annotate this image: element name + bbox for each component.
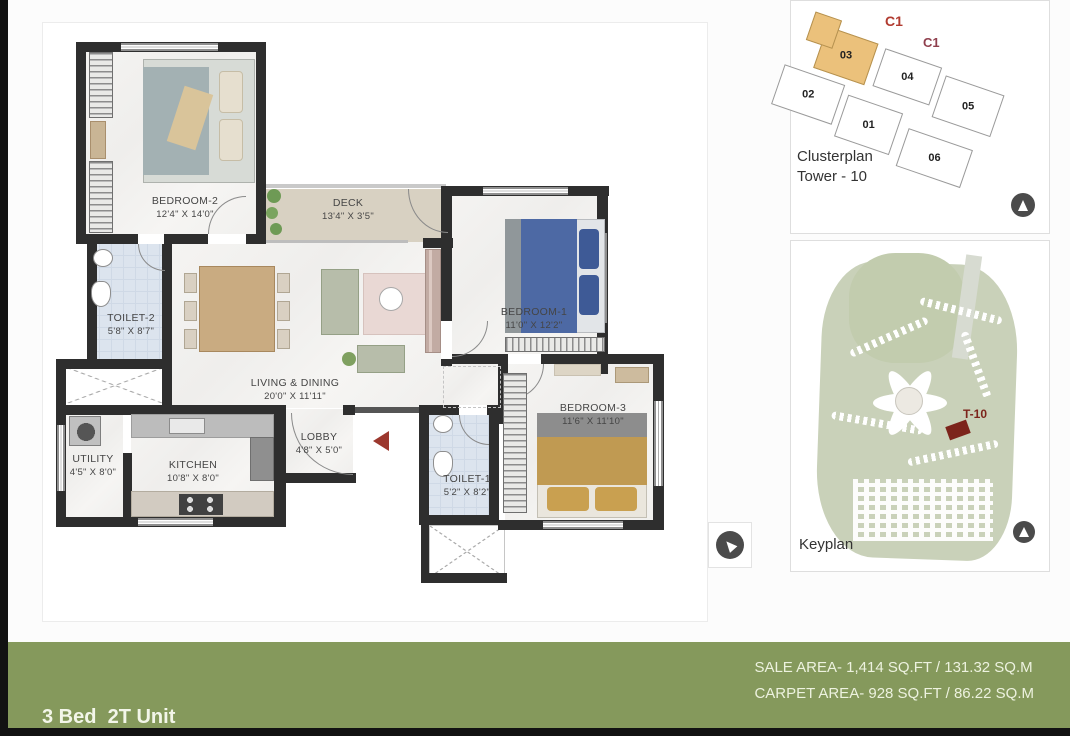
- road: [895, 387, 923, 415]
- wardrobe: [505, 337, 605, 352]
- unit-number: 02: [802, 89, 814, 101]
- unit-number: 06: [928, 152, 940, 164]
- room-name: BEDROOM-3: [518, 402, 668, 416]
- entry-arrow-icon: [373, 431, 389, 451]
- area-statistics: SALE AREA- 1,414 SQ.FT / 131.32 SQ.M CAR…: [754, 655, 1034, 708]
- chair: [184, 273, 197, 293]
- chair: [277, 273, 290, 293]
- wall: [423, 238, 453, 248]
- shaft-box: [59, 364, 171, 407]
- unit-number: 05: [962, 100, 974, 112]
- room-label-toilet2: TOILET-2 5'8" X 8'7": [76, 312, 186, 338]
- bottom-edge-bar: [0, 728, 1070, 736]
- cluster-unit-06: 06: [896, 128, 973, 188]
- loveseat: [357, 345, 405, 373]
- washing-machine: [69, 416, 101, 446]
- cluster-unit-05: 05: [932, 75, 1005, 137]
- wall: [76, 42, 86, 234]
- room-name: LOBBY: [264, 431, 374, 445]
- corridor-projection: [443, 366, 501, 408]
- wardrobe: [89, 52, 113, 118]
- carpet-area: CARPET AREA- 928 SQ.FT / 86.22 SQ.M: [754, 681, 1034, 707]
- room-name: BEDROOM-1: [464, 306, 604, 320]
- unit-title: 3 Bed 2T Unit Type - C1: [42, 650, 175, 736]
- ledge: [554, 364, 601, 376]
- room-name: DECK: [278, 197, 418, 211]
- caption-line: Clusterplan: [797, 147, 873, 167]
- dresser: [90, 121, 106, 159]
- window: [483, 187, 568, 195]
- pillow: [579, 229, 599, 269]
- washbasin: [93, 249, 113, 267]
- entry-door-leaf: [355, 407, 419, 413]
- wall: [421, 573, 507, 583]
- sofa: [321, 269, 359, 335]
- room-label-toilet1: TOILET-1 5'2" X 8'2": [412, 473, 522, 499]
- wall: [274, 405, 286, 527]
- stove: [179, 494, 223, 515]
- plant: [266, 207, 278, 219]
- room-dims: 11'6" X 11'10": [518, 416, 668, 428]
- sale-area: SALE AREA- 1,414 SQ.FT / 131.32 SQ.M: [754, 655, 1034, 681]
- room-label-utility: UTILITY 4'5" X 8'0": [43, 453, 143, 479]
- room-label-kitchen: KITCHEN 10'8" X 8'0": [133, 459, 253, 485]
- desk: [615, 367, 649, 383]
- room-name: UTILITY: [43, 453, 143, 467]
- dining-table: [199, 266, 275, 352]
- footer-banner: 3 Bed 2T Unit Type - C1 SALE AREA- 1,414…: [8, 642, 1070, 728]
- caption-line: Tower - 10: [797, 167, 873, 187]
- north-west-arrow-icon: [716, 531, 744, 559]
- coffee-table: [379, 287, 403, 311]
- cluster-unit-04: 04: [872, 48, 942, 105]
- room-name: TOILET-1: [412, 473, 522, 487]
- unit-number: 04: [901, 71, 913, 83]
- door-opening: [208, 234, 246, 244]
- north-arrow-icon: [1013, 521, 1035, 543]
- building-grid: [853, 479, 993, 541]
- north-arrow-icon: [1011, 193, 1035, 217]
- unit-number: 01: [862, 119, 874, 131]
- room-dims: 4'8" X 5'0": [264, 445, 374, 457]
- room-label-lobby: LOBBY 4'8" X 5'0": [264, 431, 374, 457]
- room-label-bedroom2: BEDROOM-2 12'4" X 14'0": [105, 195, 265, 221]
- bed-blanket: [537, 437, 647, 485]
- washbasin: [433, 415, 453, 433]
- room-dims: 10'8" X 8'0": [133, 473, 253, 485]
- window: [543, 521, 623, 529]
- floorplan-sheet: BEDROOM-2 12'4" X 14'0" DECK 13'4" X 3'5…: [0, 0, 1070, 736]
- room-dims: 20'0" X 11'11": [215, 391, 375, 403]
- room-label-deck: DECK 13'4" X 3'5": [278, 197, 418, 223]
- clusterplan-caption: Clusterplan Tower - 10: [797, 147, 873, 186]
- window: [121, 43, 218, 51]
- tower-10-label: T-10: [963, 407, 987, 421]
- room-dims: 5'8" X 8'7": [76, 326, 186, 338]
- compass-card: [708, 522, 752, 568]
- room-label-bedroom1: BEDROOM-1 11'0" X 12'2": [464, 306, 604, 332]
- room-name: KITCHEN: [133, 459, 253, 473]
- tv-unit: [425, 249, 441, 353]
- plant: [342, 352, 356, 366]
- door-opening: [138, 234, 164, 244]
- room-name: LIVING & DINING: [215, 377, 375, 391]
- window: [138, 518, 213, 526]
- keyplan-panel: T-10 Keyplan: [790, 240, 1050, 572]
- kitchen-sink: [169, 418, 205, 434]
- room-dims: 11'0" X 12'2": [464, 320, 604, 332]
- floorplan-card: BEDROOM-2 12'4" X 14'0" DECK 13'4" X 3'5…: [42, 22, 708, 622]
- wall: [419, 515, 499, 525]
- room-dims: 5'2" X 8'2": [412, 487, 522, 499]
- wall: [59, 359, 171, 369]
- clusterplan-panel: 03 04 05 02 01 06 C1 C1 Clusterplan Towe…: [790, 0, 1050, 234]
- wall: [162, 359, 172, 411]
- plant: [270, 223, 282, 235]
- room-name: TOILET-2: [76, 312, 186, 326]
- unit-number: 03: [840, 50, 852, 62]
- unit-title-line1: 3 Bed 2T Unit: [42, 704, 175, 731]
- room-label-living: LIVING & DINING 20'0" X 11'11": [215, 377, 375, 403]
- deck-railing-bottom: [264, 240, 408, 243]
- unit-type-tag: C1: [885, 13, 903, 29]
- wall: [445, 354, 664, 364]
- chair: [277, 301, 290, 321]
- wall: [419, 405, 429, 525]
- room-name: BEDROOM-2: [105, 195, 265, 209]
- unit-type-tag-secondary: C1: [923, 35, 940, 50]
- room-dims: 12'4" X 14'0": [105, 209, 265, 221]
- left-edge-bar: [0, 0, 8, 736]
- shaft-box: [429, 525, 505, 578]
- pillow: [219, 71, 243, 113]
- pillow: [547, 487, 589, 511]
- chair: [277, 329, 290, 349]
- pillow: [219, 119, 243, 161]
- cluster-buildings: 03 04 05 02 01 06: [752, 17, 1028, 237]
- room-dims: 4'5" X 8'0": [43, 467, 143, 479]
- room-label-bedroom3: BEDROOM-3 11'6" X 11'10": [518, 402, 668, 428]
- toilet-wc: [91, 281, 111, 307]
- room-dims: 13'4" X 3'5": [278, 211, 418, 223]
- door-opening: [441, 321, 452, 359]
- keyplan-caption: Keyplan: [799, 535, 853, 555]
- door-opening: [508, 354, 541, 364]
- pillow: [595, 487, 637, 511]
